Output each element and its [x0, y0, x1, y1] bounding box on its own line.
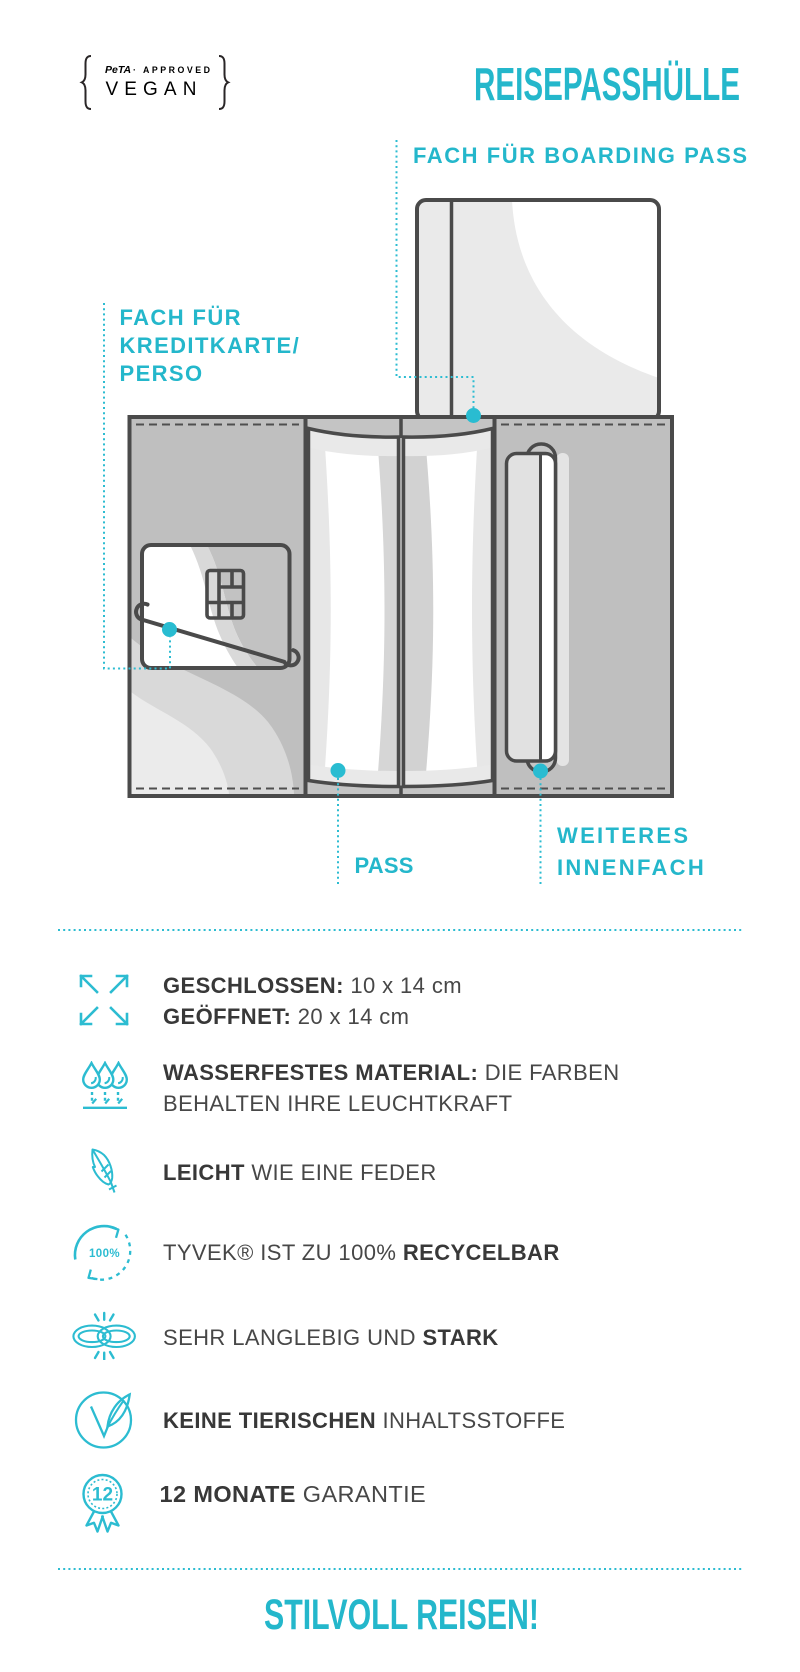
- svg-text:12: 12: [92, 1485, 113, 1506]
- svg-text:100%: 100%: [89, 1248, 120, 1260]
